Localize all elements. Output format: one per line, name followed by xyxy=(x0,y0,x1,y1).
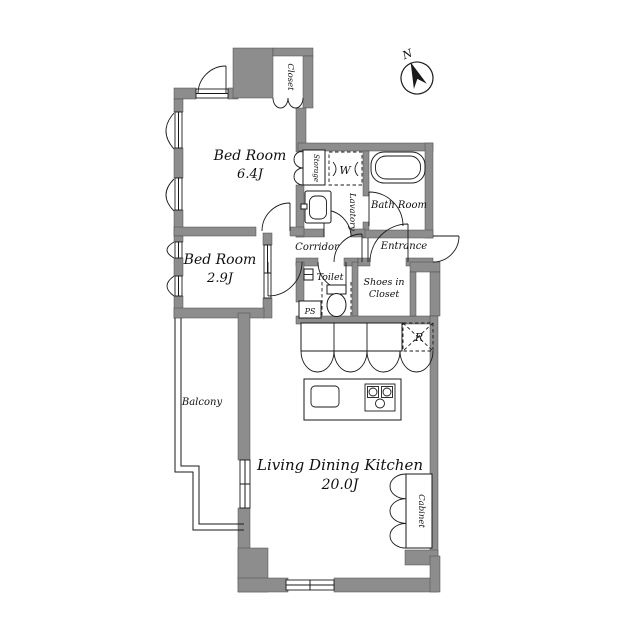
bedroom1-door xyxy=(262,203,290,231)
toilet-label: Toilet xyxy=(317,272,344,283)
entrance-label: Entrance xyxy=(380,241,428,252)
bedroom1-name: Bed Room xyxy=(213,148,287,164)
bathroom-label: Bath Room xyxy=(370,200,427,211)
washer-label: W xyxy=(339,164,352,177)
kitchen-cupboards xyxy=(301,323,433,372)
bedroom2-name: Bed Room xyxy=(183,252,257,268)
corridor-label: Corridor xyxy=(295,242,340,253)
ldk-size: 20.0J xyxy=(321,477,360,493)
storage-label: Storage xyxy=(312,154,320,182)
balcony-label: Balcony xyxy=(181,397,223,408)
walls xyxy=(174,48,440,592)
refrigerator-label: R xyxy=(414,331,423,344)
bedroom2-size: 2.9J xyxy=(206,271,234,286)
casement-arc-left-2 xyxy=(166,179,174,211)
shoes-closet-label-2: Closet xyxy=(369,289,400,300)
floor-plan: N Closet Bed Room 6.4J Storage W Lavator… xyxy=(0,0,640,640)
closet-door-arcs xyxy=(273,98,303,108)
bathtub-icon xyxy=(371,152,425,183)
bedroom1-size: 6.4J xyxy=(237,167,264,182)
shoes-closet-label-1: Shoes in xyxy=(363,277,404,288)
compass-north-label: N xyxy=(400,46,415,62)
balcony-railing xyxy=(175,318,244,530)
closet-label: Closet xyxy=(285,63,295,91)
casement-arc-left-1 xyxy=(166,113,174,149)
kitchen-counter xyxy=(304,379,401,420)
casement-arc-left-4 xyxy=(167,276,174,296)
compass: N xyxy=(390,42,438,98)
storage-door-arcs xyxy=(294,151,303,185)
cabinet-label: Cabinet xyxy=(416,494,426,528)
ps-label: PS xyxy=(304,307,316,316)
casement-arc-left-3 xyxy=(167,242,174,258)
entrance-door xyxy=(433,236,459,262)
lavatory-label: Lavatory xyxy=(347,192,357,231)
ldk-name: Living Dining Kitchen xyxy=(256,456,423,474)
toilet-icon xyxy=(322,282,351,317)
